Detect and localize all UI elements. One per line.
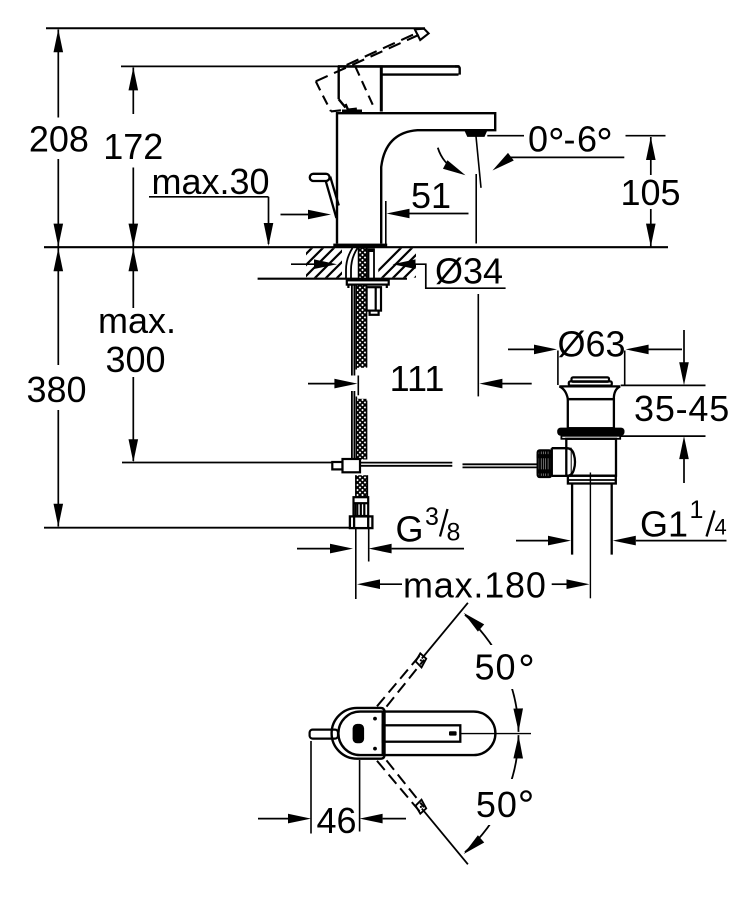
svg-text:1: 1	[690, 496, 704, 524]
svg-text:50: 50	[475, 647, 517, 688]
svg-text:105: 105	[620, 172, 680, 213]
svg-text:G1: G1	[640, 504, 688, 545]
svg-text:0: 0	[528, 119, 548, 160]
svg-text:208: 208	[29, 119, 89, 160]
svg-text:max.: max.	[98, 300, 176, 341]
svg-text:Ø34: Ø34	[435, 251, 503, 292]
svg-text:380: 380	[26, 369, 86, 410]
svg-text:300: 300	[105, 339, 165, 380]
svg-text:G: G	[396, 509, 424, 550]
svg-text:46: 46	[316, 800, 356, 841]
svg-text:4: 4	[715, 515, 727, 540]
svg-text:35-45: 35-45	[634, 388, 730, 429]
svg-text:51: 51	[411, 175, 451, 216]
svg-text:50: 50	[476, 784, 518, 825]
svg-text:8: 8	[447, 519, 461, 547]
svg-text:max.180: max.180	[403, 565, 547, 606]
svg-text:Ø63: Ø63	[558, 324, 626, 365]
svg-text:max.30: max.30	[152, 161, 270, 202]
svg-text:-6: -6	[564, 119, 599, 160]
svg-text:3: 3	[425, 503, 439, 531]
svg-text:111: 111	[390, 358, 445, 399]
